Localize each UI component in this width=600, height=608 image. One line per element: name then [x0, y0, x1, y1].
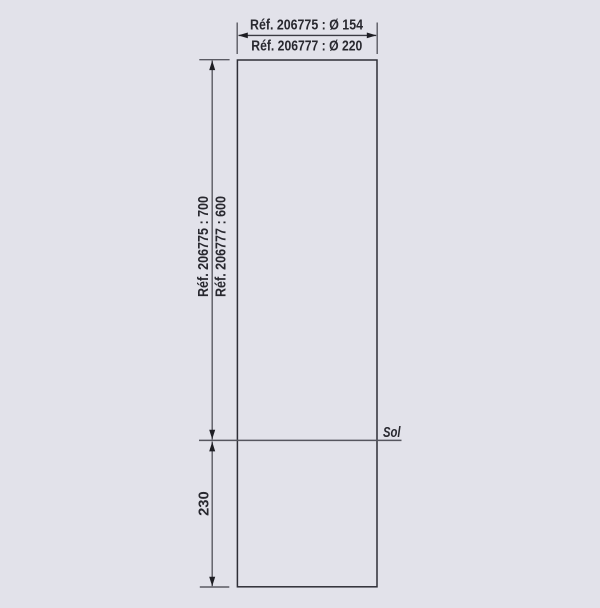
svg-text:Réf. 206777 : Ø 220: Réf. 206777 : Ø 220 — [251, 38, 362, 55]
svg-text:Sol: Sol — [383, 424, 401, 441]
svg-text:Réf. 206777 : 600: Réf. 206777 : 600 — [213, 196, 230, 297]
svg-text:230: 230 — [196, 491, 213, 516]
svg-text:Réf. 206775 : 700: Réf. 206775 : 700 — [195, 196, 212, 297]
svg-text:Réf. 206775 : Ø 154: Réf. 206775 : Ø 154 — [250, 16, 364, 33]
